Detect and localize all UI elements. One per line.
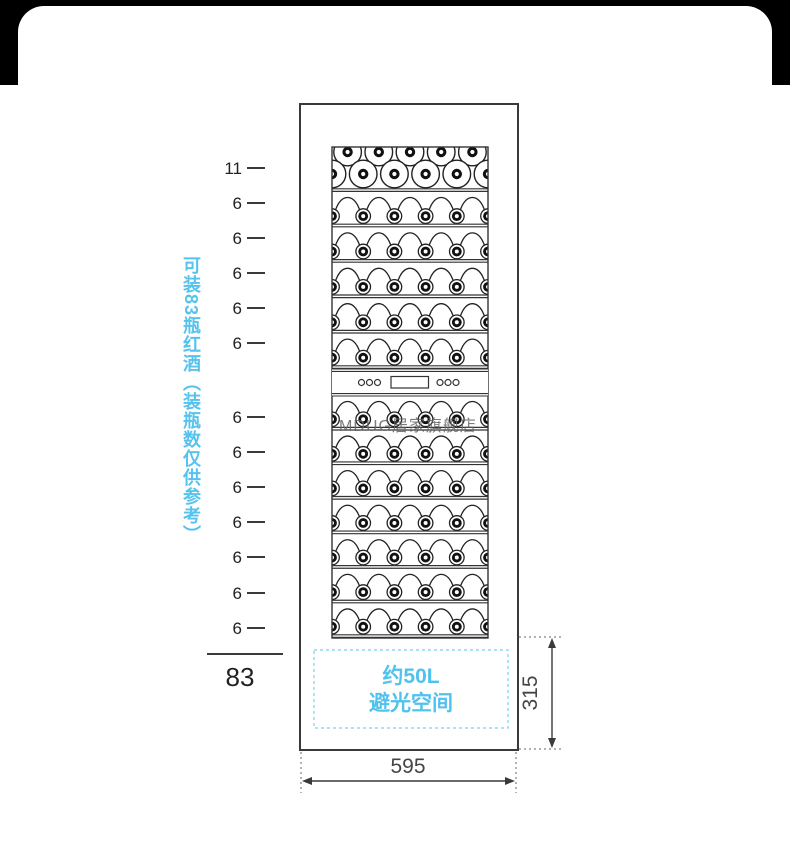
bottle-base-hole (392, 250, 396, 254)
tick-count-label: 11 (224, 159, 242, 178)
tick-count-label: 6 (233, 478, 242, 497)
bottle-base-hole (455, 285, 459, 289)
panel-button-icon (359, 380, 365, 386)
bottle-base-hole (392, 625, 396, 629)
bottle-base-hole (455, 320, 459, 324)
bottle-base-hole (392, 590, 396, 594)
bottle-base-hole (455, 356, 459, 360)
page: 可装83瓶红酒（装瓶数仅供参考） 11666666666666 83 MDUG居… (0, 0, 790, 857)
bottle-base-hole (455, 625, 459, 629)
total-count: 83 (226, 662, 255, 692)
bottle-base-hole (424, 590, 428, 594)
tick-count-label: 6 (233, 194, 242, 213)
wine-cabinet-diagram: 11666666666666 83 MDUG居家旗舰店 约50L 避光空间 31… (0, 0, 790, 857)
bottle-base-hole (455, 521, 459, 525)
bottle-base-hole (392, 320, 396, 324)
bottle-base-hole (361, 486, 365, 490)
tick-count-label: 6 (233, 584, 242, 603)
tick-count-label: 6 (233, 229, 242, 248)
bottle-base-hole (392, 285, 396, 289)
bottle-base-hole (424, 214, 428, 218)
tick-count-label: 6 (233, 513, 242, 532)
bottle-base-hole (361, 320, 365, 324)
arrow-right-icon (505, 777, 515, 785)
panel-button-icon (367, 380, 373, 386)
bottle-base-hole (470, 150, 474, 154)
dark-space-volume-label: 约50L (382, 664, 439, 688)
bottle-base-hole (424, 250, 428, 254)
bottle-base-hole (361, 590, 365, 594)
tick-count-label: 6 (233, 408, 242, 427)
bottle-base-hole (361, 250, 365, 254)
arrow-left-icon (302, 777, 312, 785)
bottle-base-hole (424, 320, 428, 324)
bottle-base-hole (361, 625, 365, 629)
bottle-base-hole (392, 214, 396, 218)
arrow-down-icon (548, 738, 556, 748)
bottle-base-hole (455, 214, 459, 218)
bottle-base-hole (392, 521, 396, 525)
bottle-base-hole (424, 285, 428, 289)
tick-count-label: 6 (233, 619, 242, 638)
bottle-base-hole (361, 356, 365, 360)
bottle-base-hole (424, 521, 428, 525)
arrow-up-icon (548, 638, 556, 648)
bottle-base-hole (424, 452, 428, 456)
tick-count-label: 6 (233, 334, 242, 353)
bottle-base-hole (455, 590, 459, 594)
panel-button-icon (445, 380, 451, 386)
bottle-base-hole (455, 486, 459, 490)
bottle-base-hole (424, 486, 428, 490)
bottle-base-hole (361, 452, 365, 456)
bottle-base-hole (361, 556, 365, 560)
tick-count-label: 6 (233, 548, 242, 567)
dimension-bottom-height: 315 (519, 637, 562, 749)
bottle-base-hole (346, 150, 350, 154)
tick-count-label: 6 (233, 264, 242, 283)
bottle-base-hole (392, 486, 396, 490)
tick-count-label: 6 (233, 299, 242, 318)
bottle-base-hole (455, 250, 459, 254)
dark-space-name-label: 避光空间 (369, 691, 453, 715)
control-panel (332, 369, 488, 396)
bottle-base-hole (392, 356, 396, 360)
bottle-base-hole (455, 452, 459, 456)
panel-button-icon (375, 380, 381, 386)
bottle-base-hole (439, 150, 443, 154)
dimension-value-595: 595 (390, 755, 425, 778)
bottle-base-hole (424, 625, 428, 629)
panel-display (391, 377, 429, 389)
capacity-ticks: 11666666666666 (224, 159, 265, 638)
bottle-base-hole (361, 172, 365, 176)
panel-button-icon (453, 380, 459, 386)
bottle-base-hole (455, 172, 459, 176)
bottle-base-hole (424, 556, 428, 560)
capacity-note-vertical: 可装83瓶红酒（装瓶数仅供参考） (178, 256, 204, 544)
store-watermark: MDUG居家旗舰店 (339, 417, 477, 435)
bottle-base-hole (424, 172, 428, 176)
bottle-base-hole (392, 556, 396, 560)
bottle-base-hole (361, 521, 365, 525)
bottle-base-hole (361, 214, 365, 218)
bottle-base-hole (408, 150, 412, 154)
bottle-base-hole (392, 172, 396, 176)
panel-button-icon (437, 380, 443, 386)
bottle-base-hole (392, 452, 396, 456)
tick-count-label: 6 (233, 443, 242, 462)
bottle-base-hole (361, 285, 365, 289)
bottle-base-hole (377, 150, 381, 154)
bottle-base-hole (455, 556, 459, 560)
dimension-value-315: 315 (519, 675, 542, 710)
dimension-width: 595 (301, 752, 516, 793)
bottle-base-hole (424, 356, 428, 360)
